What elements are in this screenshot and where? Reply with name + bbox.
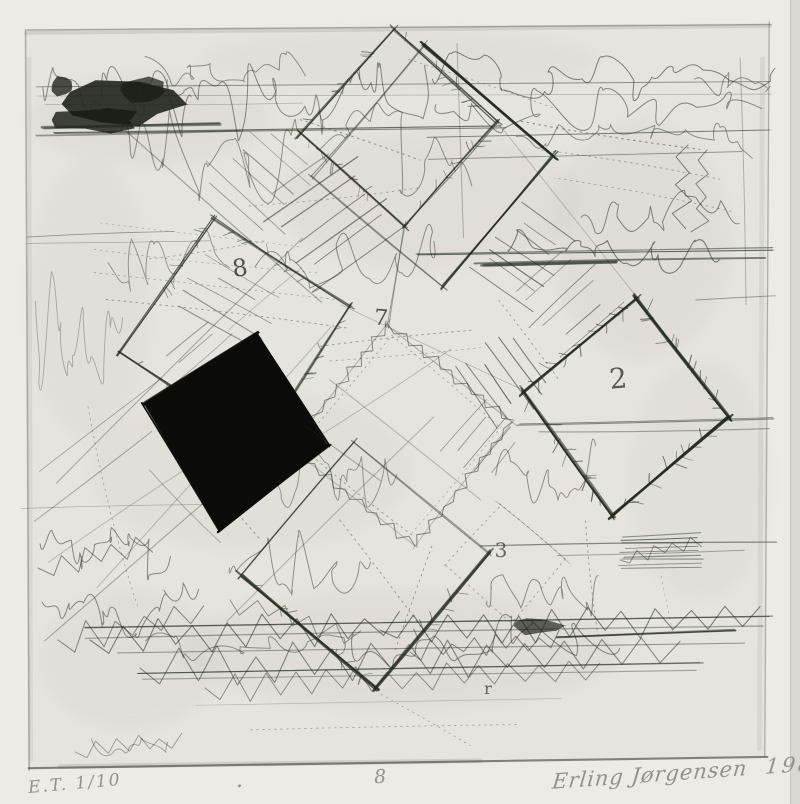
etching-image: 8 7 2 3 r [0,0,800,804]
plate-mark-r: r [484,679,492,698]
plate-mark-two: 2 [608,361,629,395]
signature-year: 1988 [764,750,800,779]
etching-photograph: 8 7 2 3 r E.T. 1/10 . 8 Erling Jørgensen… [0,0,800,804]
plate-mark-three: 3 [495,538,508,562]
plate-mark-seven: 7 [373,305,389,331]
pencil-dot: . [236,768,243,793]
paper-edge-line [790,0,791,804]
plate-number-inscription: 8 [373,766,386,789]
paper-edge-shadow [791,0,800,804]
